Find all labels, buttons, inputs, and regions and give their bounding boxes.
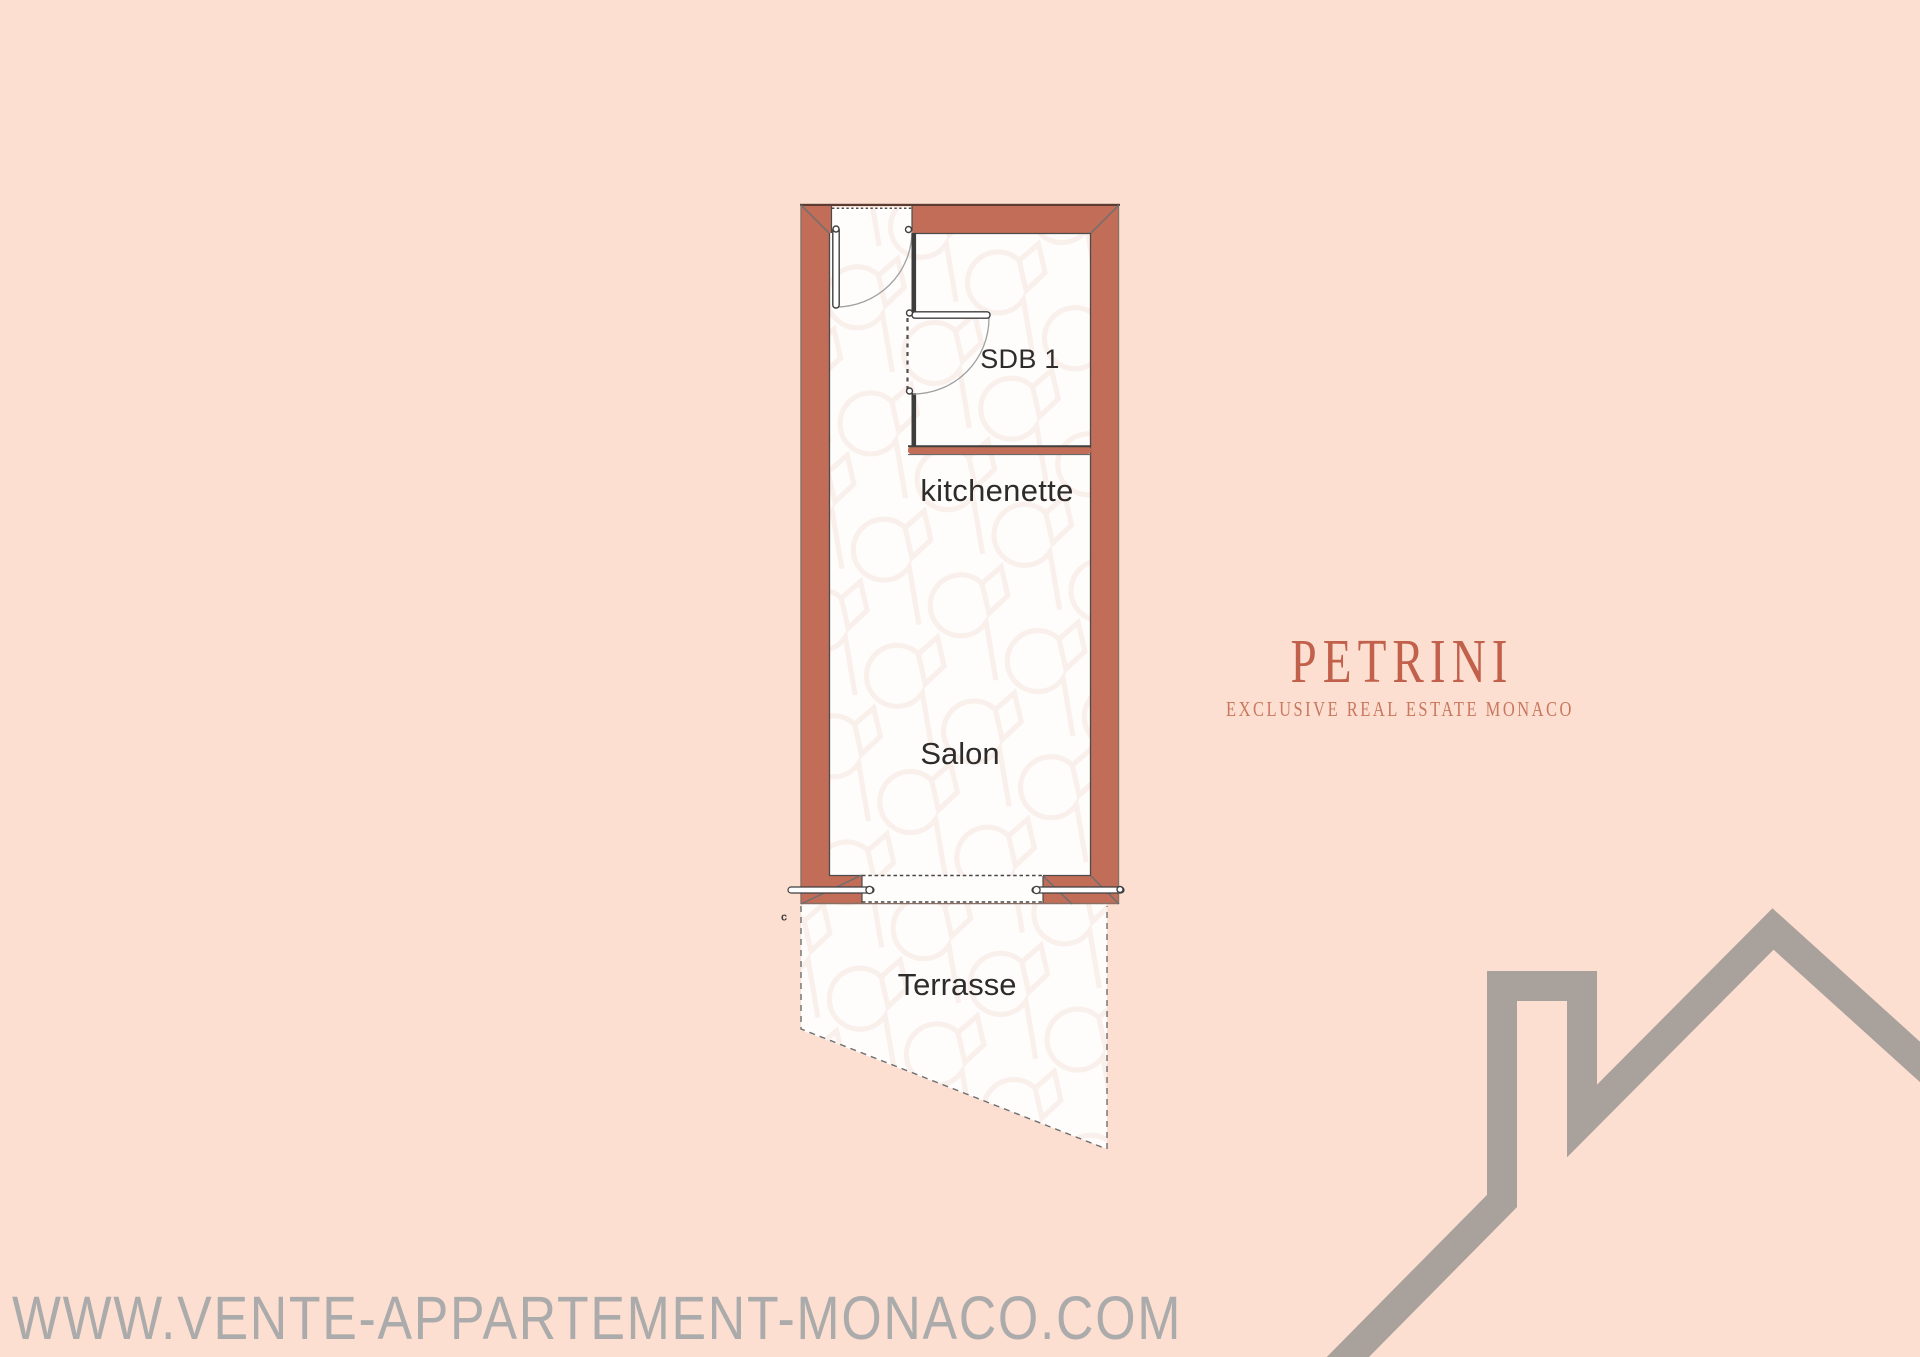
svg-text:c: c [781,912,787,924]
svg-text:EXCLUSIVE REAL ESTATE MONACO: EXCLUSIVE REAL ESTATE MONACO [1226,698,1574,721]
svg-text:kitchenette: kitchenette [920,473,1073,508]
svg-text:SDB 1: SDB 1 [980,344,1060,374]
svg-text:WWW.VENTE-APPARTEMENT-MONACO.C: WWW.VENTE-APPARTEMENT-MONACO.COM [12,1284,1182,1352]
svg-text:Terrasse: Terrasse [898,967,1017,1002]
svg-text:PETRINI: PETRINI [1290,627,1513,696]
svg-text:Salon: Salon [920,736,999,771]
